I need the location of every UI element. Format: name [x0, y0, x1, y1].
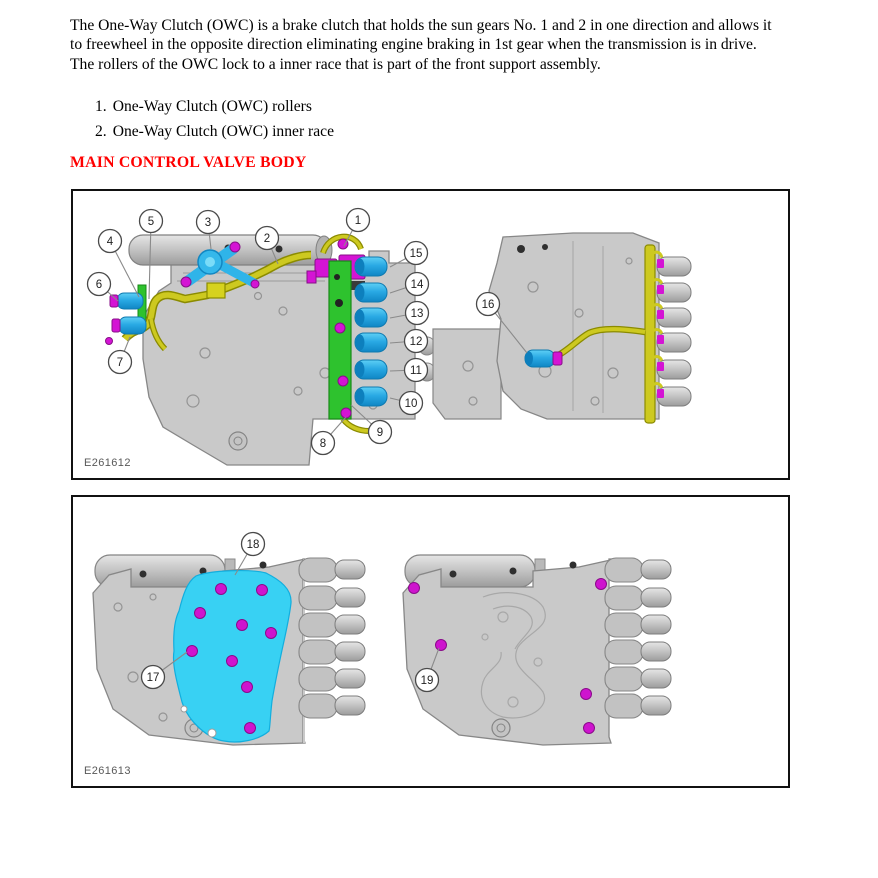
svg-text:4: 4 [107, 236, 114, 248]
solenoid-bosses-right [605, 558, 643, 718]
figure-id-label: E261613 [84, 765, 131, 777]
svg-text:12: 12 [410, 336, 423, 348]
figure-2: 171819 E261613 [71, 495, 790, 788]
list-item-text: One-Way Clutch (OWC) rollers [113, 98, 312, 115]
list-item-text: One-Way Clutch (OWC) inner race [113, 123, 334, 140]
section-heading: MAIN CONTROL VALVE BODY [70, 154, 307, 172]
paragraph-line: The One-Way Clutch (OWC) is a brake clut… [70, 16, 862, 35]
solenoid-rail-green [329, 261, 351, 419]
intro-paragraph: The One-Way Clutch (OWC) is a brake clut… [70, 16, 862, 74]
svg-text:14: 14 [411, 279, 424, 291]
figure-id-label: E261612 [84, 457, 131, 469]
svg-text:3: 3 [205, 217, 211, 229]
svg-text:16: 16 [482, 299, 495, 311]
solenoid-left-lower [106, 317, 147, 345]
manual-page: The One-Way Clutch (OWC) is a brake clut… [0, 0, 878, 878]
valve-body-diagram-top: 12345678910111213141516 [73, 191, 788, 478]
svg-text:17: 17 [147, 672, 160, 684]
valve-body-diagram-bottom: 171819 [73, 497, 788, 786]
svg-text:19: 19 [421, 675, 434, 687]
solenoid-cylinders-right [641, 560, 671, 715]
valve-body-gasket-side [403, 555, 671, 745]
valve-body-separator-plate [93, 555, 365, 745]
svg-text:7: 7 [117, 357, 123, 369]
callout-8: 8 [312, 417, 347, 455]
list-item-number: 2. [95, 123, 107, 140]
paragraph-line: The rollers of the OWC lock to a inner r… [70, 55, 862, 74]
svg-text:2: 2 [264, 233, 270, 245]
svg-text:18: 18 [247, 539, 260, 551]
solenoid-cylinders-left [335, 560, 365, 715]
paragraph-line: to freewheel in the opposite direction e… [70, 35, 862, 54]
svg-text:1: 1 [355, 215, 361, 227]
svg-text:11: 11 [410, 365, 422, 377]
valve-body-right [419, 233, 659, 419]
svg-text:8: 8 [320, 438, 326, 450]
svg-text:6: 6 [96, 279, 102, 291]
svg-text:5: 5 [148, 216, 154, 228]
svg-text:9: 9 [377, 427, 383, 439]
callout-legend-list: 1.One-Way Clutch (OWC) rollers 2.One-Way… [95, 95, 334, 144]
list-item-number: 1. [95, 98, 107, 115]
svg-text:15: 15 [410, 248, 423, 260]
callout-6: 6 [88, 273, 119, 302]
svg-text:13: 13 [411, 308, 424, 320]
list-item: 2.One-Way Clutch (OWC) inner race [95, 120, 334, 145]
svg-text:10: 10 [405, 398, 418, 410]
figure-1: 12345678910111213141516 E261612 [71, 189, 790, 480]
list-item: 1.One-Way Clutch (OWC) rollers [95, 95, 334, 120]
